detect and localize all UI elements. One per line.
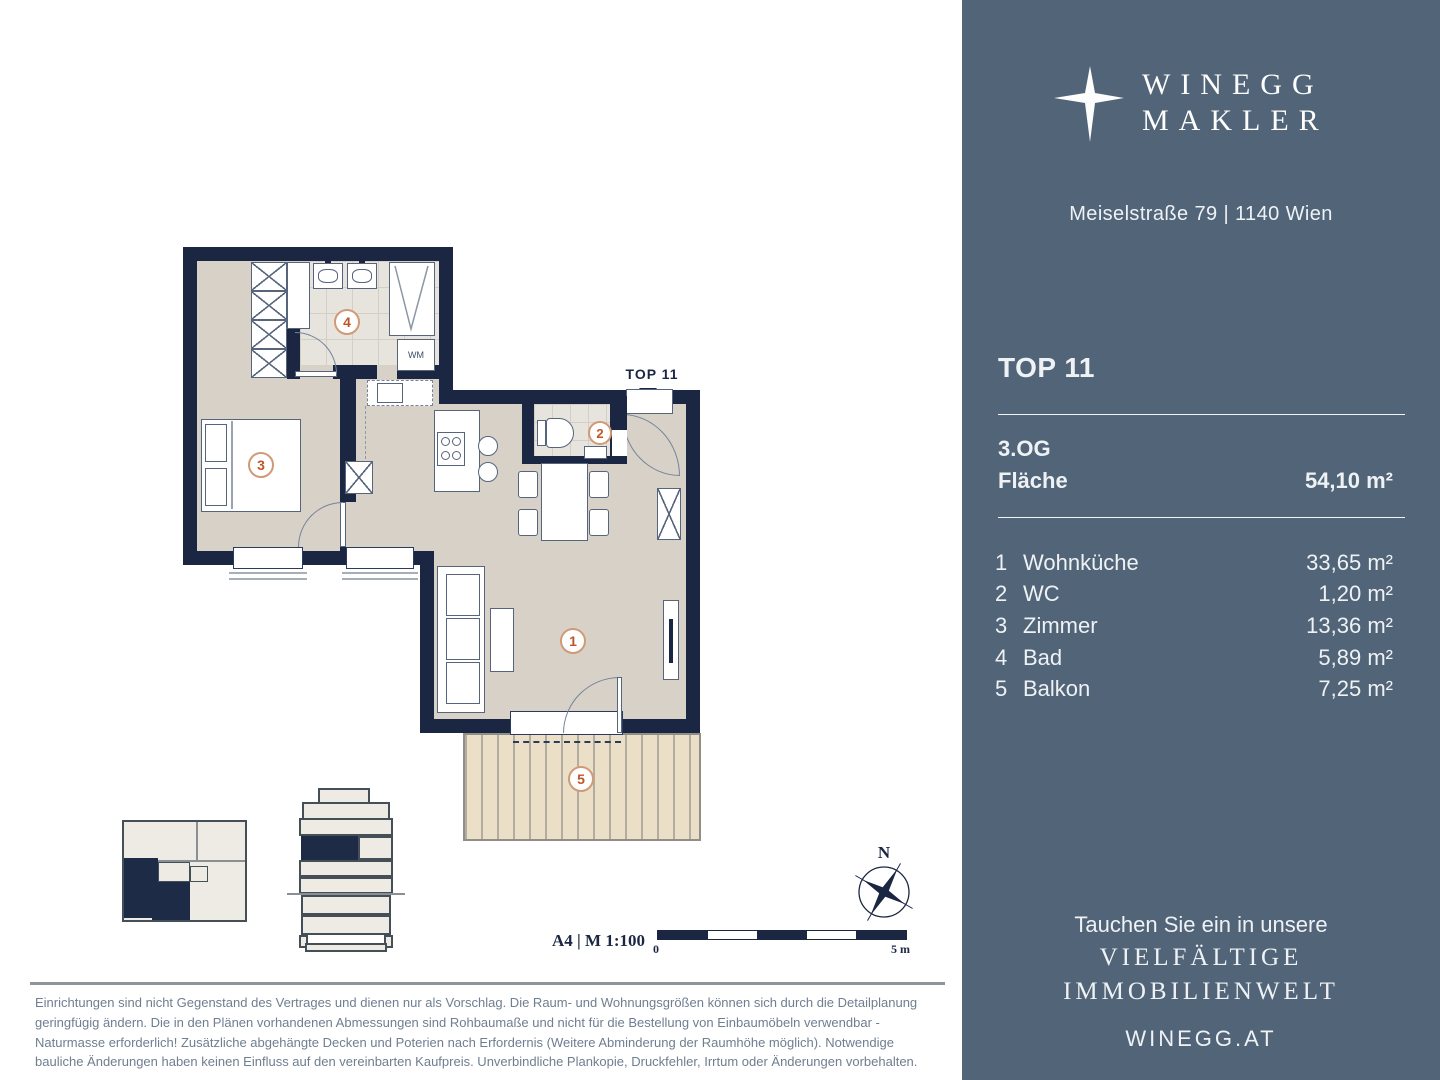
scale-segment <box>708 931 758 939</box>
scale-segment <box>856 931 906 939</box>
wall <box>333 365 377 379</box>
north-label: N <box>878 843 891 862</box>
wall <box>183 247 197 565</box>
room-marker-2: 2 <box>588 421 612 445</box>
kitchen-sink <box>377 383 403 403</box>
room-number: 2 <box>995 581 1023 607</box>
tagline-line1: Tauchen Sie ein in unsere <box>962 912 1440 938</box>
tagline-line2: VIELFÄLTIGE <box>962 944 1440 972</box>
room-list: 1 Wohnküche 33,65 m² 2 WC 1,20 m² 3 Zimm… <box>995 547 1393 705</box>
room-name: Zimmer <box>1023 613 1306 639</box>
chair <box>589 509 609 536</box>
washing-machine: WM <box>397 339 435 371</box>
key-plan-room <box>190 866 208 882</box>
basin-bowl <box>352 269 372 283</box>
elevation-row <box>301 895 391 915</box>
scale-segment <box>807 931 857 939</box>
divider-line <box>998 414 1405 415</box>
scale-caption: A4 | M 1:100 <box>552 931 645 951</box>
burner-icon <box>441 451 450 460</box>
room-name: Bad <box>1023 645 1318 671</box>
key-plan-highlight <box>152 878 190 920</box>
property-address: Meiselstraße 79 | 1140 Wien <box>962 203 1440 226</box>
window-sill <box>229 572 307 574</box>
room-area: 33,65 m² <box>1306 550 1393 576</box>
info-sidebar: WINEGG MAKLER Meiselstraße 79 | 1140 Wie… <box>962 0 1440 1080</box>
tagline-line3: IMMOBILIENWELT <box>962 978 1440 1006</box>
north-compass-icon: N <box>842 836 926 928</box>
scale-segment <box>757 931 807 939</box>
room-area: 1,20 m² <box>1318 581 1393 607</box>
window <box>233 547 303 569</box>
room-marker-1: 1 <box>560 628 586 654</box>
flyer-page: TOP 11 WM <box>0 0 1440 1080</box>
sofa-cushion <box>446 662 480 704</box>
wardrobe-icon <box>251 349 287 378</box>
entrance-threshold <box>626 389 673 414</box>
tv-icon <box>669 619 673 663</box>
logo-star-icon <box>1048 62 1128 146</box>
chair <box>589 471 609 498</box>
room-list-item: 5 Balkon 7,25 m² <box>995 673 1393 705</box>
room-list-item: 3 Zimmer 13,36 m² <box>995 610 1393 642</box>
room-list-item: 1 Wohnküche 33,65 m² <box>995 547 1393 579</box>
faucet-icon <box>325 256 331 263</box>
balcony-threshold <box>513 741 621 743</box>
website-link[interactable]: WINEGG.AT <box>962 1026 1440 1052</box>
faucet-icon <box>359 256 365 263</box>
unit-title: TOP 11 <box>998 352 1095 384</box>
elevation-row <box>299 860 393 877</box>
burner-icon <box>441 437 450 446</box>
hall-wardrobe-icon <box>657 488 681 540</box>
elevation-row <box>358 836 393 860</box>
entrance-label: TOP 11 <box>608 366 696 382</box>
sofa-cushion <box>446 574 480 616</box>
wall <box>686 390 700 733</box>
window-sill <box>229 578 307 580</box>
shower <box>389 262 435 336</box>
sofa-cushion <box>446 618 480 660</box>
toilet-tank <box>537 420 546 446</box>
bed-divider <box>231 421 233 509</box>
tall-cabinet-icon <box>345 461 373 494</box>
wc-door-opening <box>612 430 627 456</box>
sofa <box>437 566 485 713</box>
washbasin <box>347 263 377 289</box>
shower-drain-lines <box>390 263 433 334</box>
room-area: 5,89 m² <box>1318 645 1393 671</box>
disclaimer-text: Einrichtungen sind nicht Gegenstand des … <box>35 993 943 1072</box>
room-number: 3 <box>995 613 1023 639</box>
dining-table <box>541 463 588 541</box>
footer-divider <box>30 982 945 985</box>
wall <box>439 247 453 404</box>
chair <box>518 509 538 536</box>
room-marker-5: 5 <box>568 766 594 792</box>
scale-zero-label: 0 <box>653 942 659 957</box>
wall <box>420 551 434 733</box>
wall <box>621 719 700 733</box>
room-list-item: 4 Bad 5,89 m² <box>995 642 1393 674</box>
area-value: 54,10 m² <box>1305 468 1393 494</box>
chair <box>518 471 538 498</box>
window-sill <box>342 572 418 574</box>
counter-dashed-line <box>365 406 366 464</box>
elevation-row <box>299 818 393 836</box>
room-list-item: 2 WC 1,20 m² <box>995 579 1393 611</box>
room-marker-4: 4 <box>334 309 360 335</box>
logo-line1: WINEGG <box>1142 68 1324 102</box>
pillow <box>205 424 227 462</box>
scale-bar <box>657 930 907 940</box>
scale-end-label: 5 m <box>891 942 910 957</box>
room-area: 7,25 m² <box>1318 676 1393 702</box>
window-sill <box>342 578 418 580</box>
room-name: Balkon <box>1023 676 1318 702</box>
burner-icon <box>452 451 461 460</box>
room-marker-3: 3 <box>248 452 274 478</box>
room-number: 4 <box>995 645 1023 671</box>
basin-bowl <box>318 269 338 283</box>
wardrobe-icon <box>251 320 287 349</box>
room-number: 5 <box>995 676 1023 702</box>
floor-label: 3.OG <box>998 436 1051 462</box>
logo-line2: MAKLER <box>1142 104 1329 138</box>
wall <box>183 247 453 261</box>
wardrobe-icon <box>251 262 287 291</box>
washbasin <box>313 263 343 289</box>
elevation-row <box>299 877 393 894</box>
cooktop <box>437 432 465 466</box>
room-area: 13,36 m² <box>1306 613 1393 639</box>
wc-sink <box>584 446 607 459</box>
bathroom-cabinet <box>287 262 310 329</box>
elevation-highlight <box>301 836 358 860</box>
key-plan-line <box>196 822 198 860</box>
area-row: Fläche 54,10 m² <box>998 468 1393 494</box>
elevation-row <box>301 915 391 935</box>
scale-segment <box>658 931 708 939</box>
divider-line <box>998 517 1405 518</box>
room-name: Wohnküche <box>1023 550 1306 576</box>
elevation-base <box>305 943 387 952</box>
pillow <box>205 468 227 506</box>
burner-icon <box>452 437 461 446</box>
wardrobe-icon <box>251 291 287 320</box>
room-name: WC <box>1023 581 1318 607</box>
bar-stool <box>478 436 498 456</box>
bar-stool <box>478 462 498 482</box>
window <box>346 547 414 569</box>
tv-sideboard <box>663 600 679 680</box>
area-label: Fläche <box>998 468 1068 494</box>
balcony-door-leaf <box>617 677 622 733</box>
coffee-table <box>490 608 514 672</box>
floor-plan: TOP 11 WM <box>0 0 962 1080</box>
key-plan-room <box>158 862 190 882</box>
room-number: 1 <box>995 550 1023 576</box>
